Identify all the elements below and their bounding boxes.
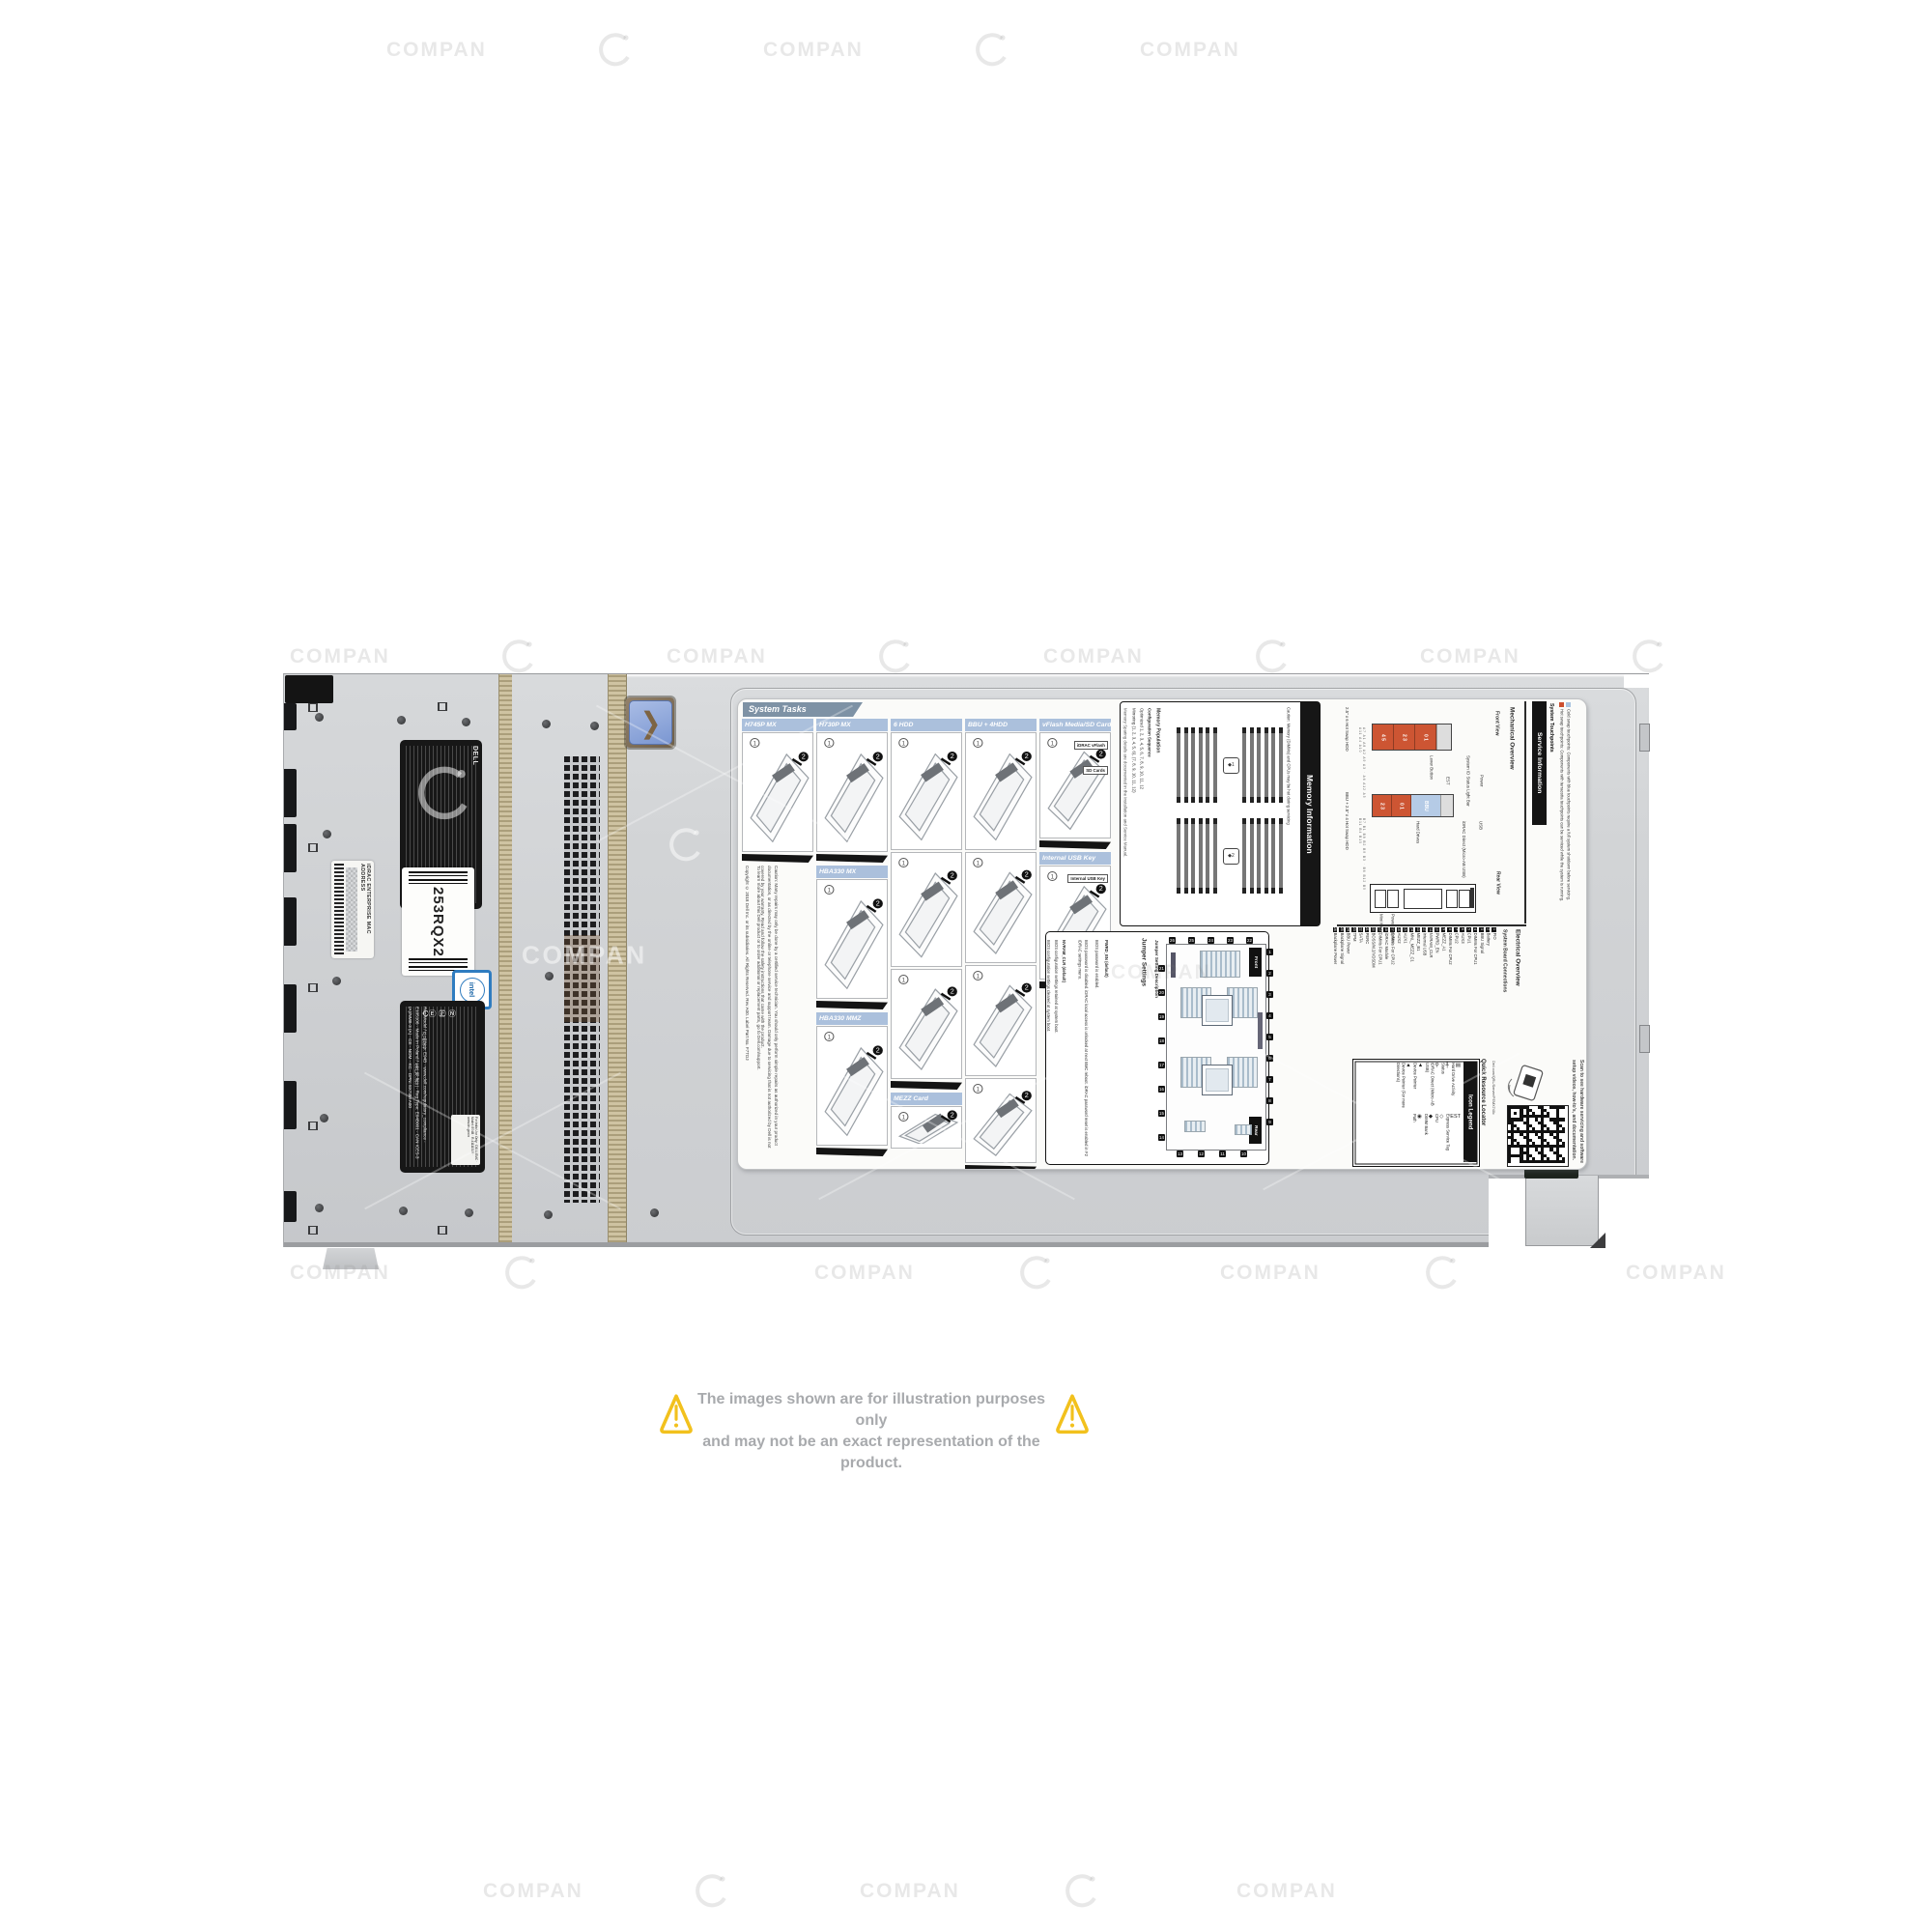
connection-number-badge: 17 xyxy=(1158,1062,1165,1068)
dimm-slot xyxy=(1264,818,1268,894)
dimm-slot xyxy=(1242,818,1246,894)
task-panel-header: BBU + 4HDD xyxy=(965,719,1037,731)
disclaimer-text: The images shown are for illustration pu… xyxy=(688,1389,1055,1474)
legend-item: ESTExpress Service Tag xyxy=(1445,1114,1461,1151)
drive-pair-cell: 2 3 xyxy=(1394,724,1415,750)
connection-number-badge: 22 xyxy=(1246,937,1253,944)
drive-b-callout: BBU + 2.5" x 4 Hot Swap HDD xyxy=(1339,792,1350,875)
connection-item: 3BBU Signal xyxy=(1479,927,1485,953)
watermark-text: COMPAN xyxy=(1420,645,1520,668)
svg-text:2: 2 xyxy=(1025,984,1029,992)
legend-item: ▤Hard Drive Activity xyxy=(1450,1063,1461,1095)
dimm-bank-icon: ◆ xyxy=(1429,1114,1433,1121)
india-bis-sublabel: For India Use Only · DELL EMC · Model: E… xyxy=(451,1115,480,1165)
idrac-mac-sticker: iDRAC ENTERPRISE MAC ADDRESS xyxy=(331,861,374,958)
legend-item: ⚲iDRAC Direct (Micro-AB USB) xyxy=(1425,1063,1439,1111)
memory-information-box: Memory Information Caution: Memory (DIMM… xyxy=(1120,701,1321,926)
legend-item: ╀Status xyxy=(1440,1063,1449,1074)
service-information-title: Service Information xyxy=(1536,732,1543,793)
usb-label: USB xyxy=(1477,821,1484,850)
task-panel-header: Internal USB Key xyxy=(1039,852,1111,865)
dimm-slot xyxy=(1271,818,1275,894)
drive-latch xyxy=(284,1081,297,1129)
task-panel-illustration: 2 1 xyxy=(891,969,962,1079)
svg-text:2: 2 xyxy=(1025,871,1029,879)
svg-text:1: 1 xyxy=(976,861,980,867)
dimm-slot xyxy=(1177,818,1180,894)
connection-item: 14MNL_MEZZ_C1 xyxy=(1408,927,1414,962)
illustration-callout: iDRAC vFlash xyxy=(1074,741,1108,750)
hard-drives-label: Hard Drives xyxy=(1414,821,1421,873)
barcode-icon xyxy=(334,864,344,955)
connection-item: 10PWRD_EN xyxy=(1435,927,1440,953)
dimm-slot xyxy=(1199,727,1203,803)
warning-triangle-icon xyxy=(1055,1391,1090,1435)
watermark-text: COMPAN xyxy=(1043,645,1144,668)
edge-connector xyxy=(1171,952,1176,978)
dimm-slot xyxy=(1279,818,1283,894)
cpu-diamond-badge: ◆2 xyxy=(1223,848,1239,865)
touchpoint-bullet: Cold swap touchpoints: Components with b… xyxy=(1565,702,1571,1004)
connection-number-badge: 2 xyxy=(1266,970,1273,977)
dimm-slot xyxy=(1199,818,1203,894)
dimm-connector-group xyxy=(1235,1124,1252,1135)
dimm-slot xyxy=(1279,727,1283,803)
task-panel-header: MEZZ Card xyxy=(891,1093,962,1105)
dimm-slot xyxy=(1271,727,1275,803)
idrac-direct-micro-ab-usb--icon: ⚲ xyxy=(1435,1063,1439,1069)
connection-number-badge: 7 xyxy=(1266,1076,1273,1083)
task-panel-illustration: 2 1 xyxy=(965,1078,1037,1163)
connection-number-badge: 3 xyxy=(1266,991,1273,998)
svg-text:1: 1 xyxy=(901,978,905,984)
task-panel-header: 6 HDD xyxy=(891,719,962,731)
drive-latch xyxy=(284,769,297,817)
connection-number-badge: 21 xyxy=(1158,965,1165,972)
svg-text:1: 1 xyxy=(976,741,980,748)
icon-legend-row1: ▤Hard Drive Activity╀Status⚲iDRAC Direct… xyxy=(1356,1063,1461,1112)
rivet-slot xyxy=(438,702,447,711)
connection-number-badge: 20 xyxy=(1158,989,1165,996)
touchpoint-bullets: Hot swap touchpoints: Components with te… xyxy=(1558,702,1587,1007)
rivet-slot xyxy=(308,1226,318,1235)
watermark-text: COMPAN xyxy=(860,1880,960,1903)
label-copyright-text: Copyright © 2018 Dell Inc. or its subsid… xyxy=(742,866,751,1163)
dimm-slot xyxy=(1264,727,1268,803)
svg-text:2: 2 xyxy=(951,1111,954,1119)
front-io-endcap xyxy=(1436,724,1451,750)
connection-number-badge: 9 xyxy=(1266,1119,1273,1125)
dimm-slot xyxy=(1206,818,1209,894)
watermark-text: COMPAN xyxy=(1140,39,1240,62)
connection-item: 9MEZZ_A1 xyxy=(1440,927,1446,951)
rivet-slot xyxy=(308,983,318,992)
dimm-slot xyxy=(1213,818,1217,894)
connection-item: 16AUX2 xyxy=(1396,927,1402,944)
connection-number-badge: 24 xyxy=(1207,937,1214,944)
qrl-scan-text: Scan to see hardware servicing and softw… xyxy=(1555,1060,1585,1166)
jumper-row: PWRD_EN (default) xyxy=(1100,940,1109,1156)
dimm-slot xyxy=(1191,727,1195,803)
connection-item: 7CPU2 xyxy=(1453,927,1459,944)
rivet-slot xyxy=(308,703,318,712)
connection-item: 24BBU Power xyxy=(1345,927,1350,953)
connection-item: 5CPU1 xyxy=(1466,927,1472,944)
server-chassis-top-view: ❯ DELL ⚠ ♻ ⊗ iDRAC ENTERPRISE MAC ADDRES… xyxy=(283,673,1649,1247)
idrac-sticker-text: iDRAC ENTERPRISE MAC ADDRESS xyxy=(359,864,371,955)
watermark-text: COMPAN xyxy=(667,645,767,668)
panel-shadow-wedge xyxy=(965,1165,1037,1170)
connection-item: 11NVRAM_CLR xyxy=(1428,927,1434,957)
connection-number-badge: 12 xyxy=(1198,1151,1205,1157)
jumper-table-headers: Jumper Setting Description xyxy=(1152,940,1159,1156)
drive-latch xyxy=(284,824,297,872)
bottom-edge xyxy=(284,1242,1489,1247)
connection-item: 26Backplane Power xyxy=(1332,927,1338,964)
svg-text:2: 2 xyxy=(1099,885,1103,893)
dimm-slot xyxy=(1250,818,1254,894)
connection-item: 22SATA xyxy=(1357,927,1363,943)
drive-a-callout: 2.5" x 6 Hot Swap HDD xyxy=(1339,707,1350,784)
emi-gasket-strip-2 xyxy=(608,674,627,1247)
front-drive-diagram-6hdd: 4 52 30 1 xyxy=(1372,724,1452,751)
screw xyxy=(462,718,470,726)
dimm-slot xyxy=(1242,727,1246,803)
connection-number-badge: 4 xyxy=(1266,1012,1273,1019)
drive-latch xyxy=(284,1191,297,1222)
watermark-logo-icon xyxy=(973,31,1011,70)
connection-item: 21PERC xyxy=(1364,927,1370,944)
latch-button: ❯ xyxy=(629,700,672,745)
device-pointer-for-more-directions--icon: ▲ xyxy=(1406,1063,1410,1069)
cpu-diamond-badge: ◆1 xyxy=(1223,757,1239,774)
hard-drive-activity-icon: ▤ xyxy=(1456,1063,1461,1069)
screw xyxy=(542,720,551,728)
jumper-row: NVRAM_CLR (default) xyxy=(1058,940,1066,1156)
idrac-direct-label: iDRAC Direct (Micro-AB USB) xyxy=(1457,821,1466,879)
task-panel-header: H745P MX xyxy=(742,719,813,731)
task-panel-illustration: 2 1 xyxy=(965,965,1037,1076)
connection-item: 12Internal USB xyxy=(1421,927,1427,955)
rear-view-diagram xyxy=(1370,884,1476,913)
bbu-cell: BBU xyxy=(1411,795,1440,816)
memory-table-headers: Configuration Sequence xyxy=(1146,708,1152,919)
icon-legend-box: Icon Legend ▤Hard Drive Activity╀Status⚲… xyxy=(1352,1059,1480,1167)
watermark-logo-icon xyxy=(1253,638,1292,676)
task-panel-header: HBA330 MX xyxy=(816,866,888,878)
mac-address-blurred xyxy=(346,867,357,952)
connection-item: 18iDRAC Module xyxy=(1383,927,1389,959)
rear-badge: Rear xyxy=(1253,1125,1258,1136)
svg-text:1: 1 xyxy=(901,1115,905,1122)
task-column: BBU + 4HDD 2 1 2 1 2 1 2 1 xyxy=(965,719,1037,1170)
task-panel-illustration: 2 1 iDRAC vFlashSD Cards xyxy=(1039,732,1111,838)
connection-number-badge: 5 xyxy=(1266,1034,1273,1040)
front-badge: Front xyxy=(1253,956,1258,968)
legend-item: ▲Device Pointer xyxy=(1412,1063,1423,1089)
dimm-slot xyxy=(1213,727,1217,803)
screw xyxy=(465,1208,473,1217)
label-learnmore-text: To learn more about this Dell product or… xyxy=(753,866,762,1163)
watermark-logo-icon xyxy=(1063,1872,1101,1911)
regulatory-label-bottom: Reg Model / 产品型号: E94B · www.dell.com/re… xyxy=(400,1001,485,1173)
intel-ring-icon: intel xyxy=(460,978,485,1003)
service-tag-sticker: 253RQX2 xyxy=(402,867,474,976)
connection-number-badge: 6 xyxy=(1266,1055,1273,1062)
intel-text: intel xyxy=(468,982,476,997)
screw xyxy=(315,713,324,722)
screw xyxy=(650,1208,659,1217)
task-panel-illustration: 2 1 xyxy=(891,852,962,967)
watermark-text: COMPAN xyxy=(1236,1880,1337,1903)
svg-text:2: 2 xyxy=(876,899,880,907)
task-panel-illustration: 2 1 xyxy=(816,1026,888,1146)
dell-logo: DELL xyxy=(471,746,478,765)
product-photo-page: ❯ DELL ⚠ ♻ ⊗ iDRAC ENTERPRISE MAC ADDRES… xyxy=(0,0,1932,1932)
legend-item: ◉Path xyxy=(1412,1114,1422,1122)
memory-mirroring-row: Mirroring (1, 2, 3, 4, 5, 6), (7, 8, 9, … xyxy=(1130,708,1137,919)
svg-text:2: 2 xyxy=(951,871,954,879)
panel-shadow-wedge xyxy=(816,854,888,863)
system-board-connections-list: 1FIO2Battery3BBU Signal4DIMMs For CPU15C… xyxy=(1304,927,1497,1012)
jumper-settings-box: Jumper Settings Jumper Setting Descripti… xyxy=(1045,931,1269,1165)
memory-optimized-row: Optimized 1, 2, 3, 4, 5, 6, 7, 8, 9, 10,… xyxy=(1138,708,1145,919)
connection-number-badge: 14 xyxy=(1158,1134,1165,1141)
chevron-right-icon: ❯ xyxy=(640,705,662,740)
dimm-slot xyxy=(1250,727,1254,803)
connection-item: 13MEZZ_B1 xyxy=(1415,927,1421,951)
divider xyxy=(1524,701,1526,923)
task-panel-header: H730P MX xyxy=(816,719,888,731)
front-view-label: Front View xyxy=(1492,711,1500,769)
svg-text:1: 1 xyxy=(901,861,905,867)
chassis-foot xyxy=(323,1248,379,1269)
dimm-slot xyxy=(1191,818,1195,894)
svg-text:1: 1 xyxy=(976,974,980,980)
drive-latch xyxy=(284,897,297,946)
svg-text:2: 2 xyxy=(1025,753,1029,760)
dimm-bank-1: ◆1 xyxy=(1177,727,1286,803)
connection-item: 1FIO xyxy=(1492,927,1497,940)
dimm-slot xyxy=(1177,727,1180,803)
jumper-row: BIOS password is enabled. xyxy=(1091,940,1099,1156)
screw xyxy=(544,1210,553,1219)
disclaimer-line1: The images shown are for illustration pu… xyxy=(688,1389,1055,1432)
rear-view-label: Rear View xyxy=(1493,871,1501,920)
qrl-title: Quick Resource Locator xyxy=(1480,1059,1486,1165)
rear-tab xyxy=(1525,1176,1599,1246)
jumper-settings-title: Jumper Settings xyxy=(1139,938,1149,1044)
watermark-logo-icon xyxy=(596,31,635,70)
task-column: H745P MX 2 1 xyxy=(742,719,813,866)
corner-notch xyxy=(1624,674,1649,688)
svg-text:2: 2 xyxy=(876,1046,880,1054)
screw xyxy=(399,1207,408,1215)
svg-text:2: 2 xyxy=(1099,751,1103,758)
dimm-bank-2: ◆2 xyxy=(1177,818,1286,894)
screw xyxy=(332,977,341,985)
divider xyxy=(1337,924,1526,926)
power-label: Power xyxy=(1478,775,1485,810)
device-pointer-icon: ▲ xyxy=(1418,1063,1423,1069)
screw xyxy=(323,830,331,838)
watermark-text: COMPAN xyxy=(290,645,390,668)
sysid-label: System ID Status Light Bar xyxy=(1464,755,1471,810)
side-clip-2 xyxy=(1639,1025,1650,1053)
label-caution-text: Caution: Many repairs may only be done b… xyxy=(767,866,780,1163)
watermark-logo-icon xyxy=(876,638,915,676)
connection-number-badge: 11 xyxy=(1219,1151,1226,1157)
connection-item: 25Backplane Signal xyxy=(1339,927,1345,964)
screw xyxy=(590,722,599,730)
panel-shadow-wedge xyxy=(742,854,813,863)
cpu-socket xyxy=(1202,995,1233,1026)
watermark-text: COMPAN xyxy=(483,1880,583,1903)
system-tasks-banner: System Tasks xyxy=(743,702,863,717)
status-icon: ╀ xyxy=(1446,1063,1449,1069)
screw xyxy=(397,716,406,724)
edge-connector xyxy=(1258,1012,1263,1049)
connection-number-badge: 13 xyxy=(1177,1151,1183,1157)
svg-text:1: 1 xyxy=(827,741,831,748)
vent-tint xyxy=(564,935,600,1022)
drive-pair-cell: 0 1 xyxy=(1392,795,1411,816)
system-board-diagram: Front Rear 12345678910111213141516171819… xyxy=(1166,944,1266,1151)
task-panel-illustration: 2 1 xyxy=(891,1106,962,1149)
memory-sparing-note: Memory Sparing details are documented in… xyxy=(1122,708,1128,919)
mini-mezz-label: Mini Mezz xyxy=(1378,914,1384,952)
svg-text:2: 2 xyxy=(1025,1092,1029,1099)
drive-pair-cell: 4 5 xyxy=(1373,724,1394,750)
drive-pair-cell: 0 1 xyxy=(1415,724,1436,750)
dimm-slot xyxy=(1206,727,1209,803)
watermark-logo-icon xyxy=(502,1254,541,1293)
illustration-callout: Internal USB Key xyxy=(1067,874,1108,883)
screw xyxy=(320,1114,328,1122)
connection-number-badge: 25 xyxy=(1188,937,1195,944)
legend-item: ◆DIMM Bank xyxy=(1423,1114,1433,1135)
side-clip-1 xyxy=(1639,724,1650,752)
connection-number-badge: 26 xyxy=(1169,937,1176,944)
system-touchpoints-subtitle: System Touchpoints xyxy=(1548,703,1554,838)
dimm-slot xyxy=(1184,818,1188,894)
disclaimer-line2: and may not be an exact representation o… xyxy=(688,1432,1055,1474)
mechanical-overview-title: Mechanical Overview xyxy=(1507,707,1517,852)
connection-number-badge: 15 xyxy=(1158,1110,1165,1117)
dimm-slot xyxy=(1257,727,1261,803)
svg-text:2: 2 xyxy=(951,753,954,760)
task-panel-header: HBA330 MMZ xyxy=(816,1012,888,1025)
svg-text:1: 1 xyxy=(827,1035,831,1041)
rivet-slot xyxy=(308,1122,318,1130)
connection-item: 2Battery xyxy=(1485,927,1491,946)
svg-text:2: 2 xyxy=(951,987,954,995)
connection-number-badge: 23 xyxy=(1227,937,1234,944)
path-icon: ◉ xyxy=(1417,1114,1422,1121)
watermark-text: COMPAN xyxy=(814,1262,915,1285)
front-drive-diagram-bbu4hdd: 2 30 1BBU xyxy=(1372,794,1454,817)
drive-latch xyxy=(284,703,297,730)
qrl-url: Dell.com/QRL/Server/PEMX740c xyxy=(1492,1061,1495,1163)
screw xyxy=(315,1204,324,1212)
connection-item: 20BOSS/M.2/VDSDM xyxy=(1371,927,1377,968)
svg-text:1: 1 xyxy=(976,1087,980,1094)
connection-number-badge: 1 xyxy=(1266,949,1273,955)
watermark-text: COMPAN xyxy=(763,39,864,62)
connection-item: 23TPM xyxy=(1351,927,1357,941)
dimm-connector-group xyxy=(1184,1121,1206,1132)
connection-item: 15AUX1 xyxy=(1403,927,1408,944)
watermark-logo-icon xyxy=(693,1872,731,1911)
svg-text:1: 1 xyxy=(1050,874,1054,881)
screw xyxy=(545,972,554,980)
panel-shadow-wedge xyxy=(816,1001,888,1009)
task-panel-illustration: 2 1 xyxy=(816,732,888,852)
cpu-icon: ◇ xyxy=(1439,1114,1443,1121)
task-panel-header: vFlash Media/SD Card xyxy=(1039,719,1111,731)
task-column: 6 HDD 2 1 2 1 2 1 MEZZ Card 2 1 xyxy=(891,719,962,1151)
memory-population-title: Memory Population xyxy=(1153,708,1161,919)
icon-legend-title: Icon Legend xyxy=(1467,1094,1474,1129)
dimm-slot xyxy=(1184,727,1188,803)
watermark-logo-icon xyxy=(1423,1254,1462,1293)
svg-text:2: 2 xyxy=(876,753,880,760)
jumper-row: BIOS configuration settings retained at … xyxy=(1050,940,1059,1156)
connection-number-badge: 16 xyxy=(1158,1086,1165,1093)
service-tag-text: 253RQX2 xyxy=(430,887,446,957)
task-panel-illustration: 2 1 xyxy=(965,732,1037,850)
cpu-socket xyxy=(1202,1065,1233,1095)
phone-scan-illustration xyxy=(1504,1064,1548,1102)
jumper-row: BIOS configuration settings cleared at s… xyxy=(1042,940,1051,1156)
panel-shadow-wedge xyxy=(816,1148,888,1156)
task-panel-illustration: 2 1 xyxy=(742,732,813,852)
ce-mark-icon: CⒺ ㊣ Ⓝ xyxy=(423,1009,456,1019)
panel-shadow-wedge xyxy=(1039,840,1111,849)
watermark-logo-icon xyxy=(1017,1254,1056,1293)
jumper-row: BIOS password is disabled. iDRAC local a… xyxy=(1073,940,1089,1156)
watermark-text: COMPAN xyxy=(386,39,487,62)
legend-item: ◇CPU xyxy=(1435,1114,1444,1122)
front-io-endcap xyxy=(1440,795,1453,816)
task-column: H730P MX 2 1 HBA330 MX 2 1 HBA330 MMZ 2 … xyxy=(816,719,888,1159)
express-service-tag-icon: EST xyxy=(1450,1114,1461,1121)
electrical-overview-title: Electrical Overview xyxy=(1513,929,1522,1074)
connection-number-badge: 10 xyxy=(1240,1151,1247,1157)
svg-text:1: 1 xyxy=(1050,741,1054,748)
connection-number-badge: 8 xyxy=(1266,1097,1273,1104)
svg-text:1: 1 xyxy=(827,888,831,895)
connection-item: 4DIMMs For CPU1 xyxy=(1472,927,1478,965)
panel-shadow-wedge xyxy=(891,1081,962,1090)
dimm-slot xyxy=(1257,818,1261,894)
front-corner-block xyxy=(285,675,333,703)
release-latch: ❯ xyxy=(626,697,674,748)
rivet-slot xyxy=(438,1226,447,1235)
connection-number-badge: 18 xyxy=(1158,1037,1165,1044)
watermark-text: COMPAN xyxy=(1220,1262,1321,1285)
service-information-label: System Tasks H745P MX 2 1 H730P MX 2 1 H… xyxy=(737,698,1587,1170)
connection-item: 8DIMMs For CPU2 xyxy=(1447,927,1453,965)
illustration-callout: SD Cards xyxy=(1083,766,1108,775)
touchpoint-bullet: Hot swap touchpoints: Components with te… xyxy=(1558,702,1564,1004)
connection-item: 6AUX3 xyxy=(1460,927,1465,944)
task-panel-illustration: 2 1 xyxy=(891,732,962,850)
rivet-slot xyxy=(308,843,318,852)
regulatory-text: Reg Model / 产品型号: E94B · www.dell.com/re… xyxy=(406,1007,428,1161)
drive-pair-cell: 2 3 xyxy=(1373,795,1392,816)
icon-legend-row2: ESTExpress Service Tag◇CPU◆DIMM Bank◉Pat… xyxy=(1356,1114,1461,1163)
